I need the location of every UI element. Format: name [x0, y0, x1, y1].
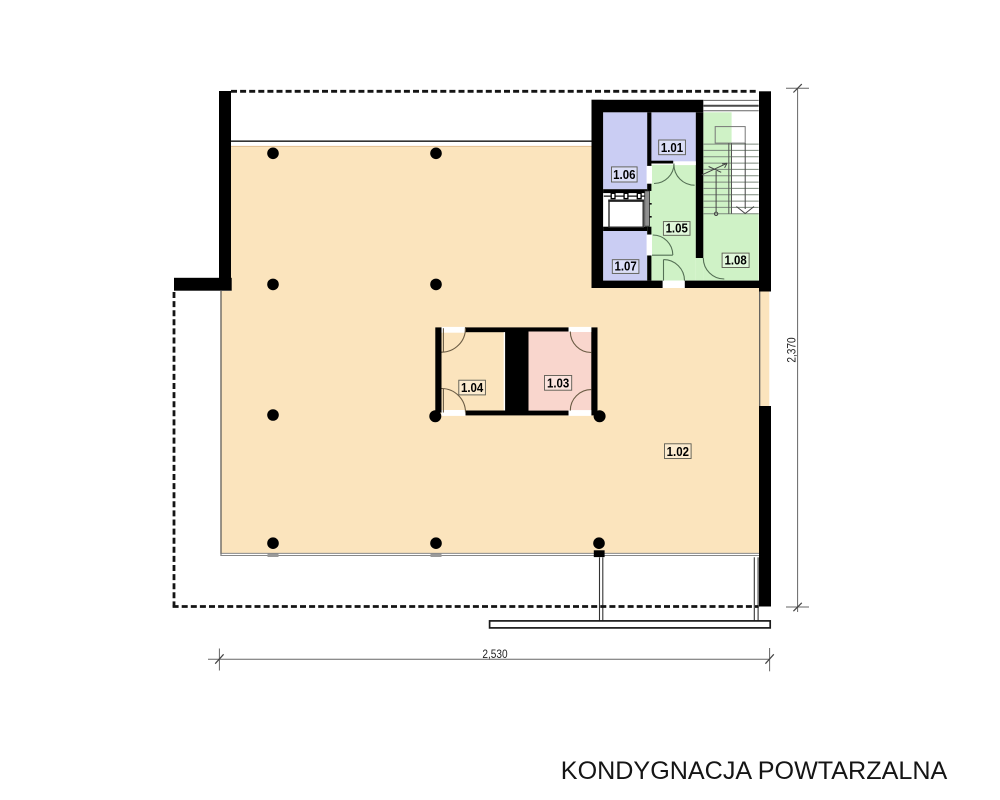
svg-text:1.06: 1.06: [613, 168, 635, 183]
svg-text:1.02: 1.02: [667, 444, 689, 459]
svg-text:KONDYGNACJA POWTARZALNA: KONDYGNACJA POWTARZALNA: [561, 757, 948, 785]
svg-text:1.04: 1.04: [461, 380, 483, 395]
svg-text:1.05: 1.05: [666, 221, 688, 236]
svg-text:2,370: 2,370: [786, 337, 799, 362]
svg-text:2,530: 2,530: [482, 648, 507, 661]
svg-text:1.07: 1.07: [614, 259, 636, 274]
svg-text:1.08: 1.08: [724, 253, 746, 268]
svg-text:1.01: 1.01: [661, 140, 683, 155]
svg-text:1.03: 1.03: [547, 376, 569, 391]
